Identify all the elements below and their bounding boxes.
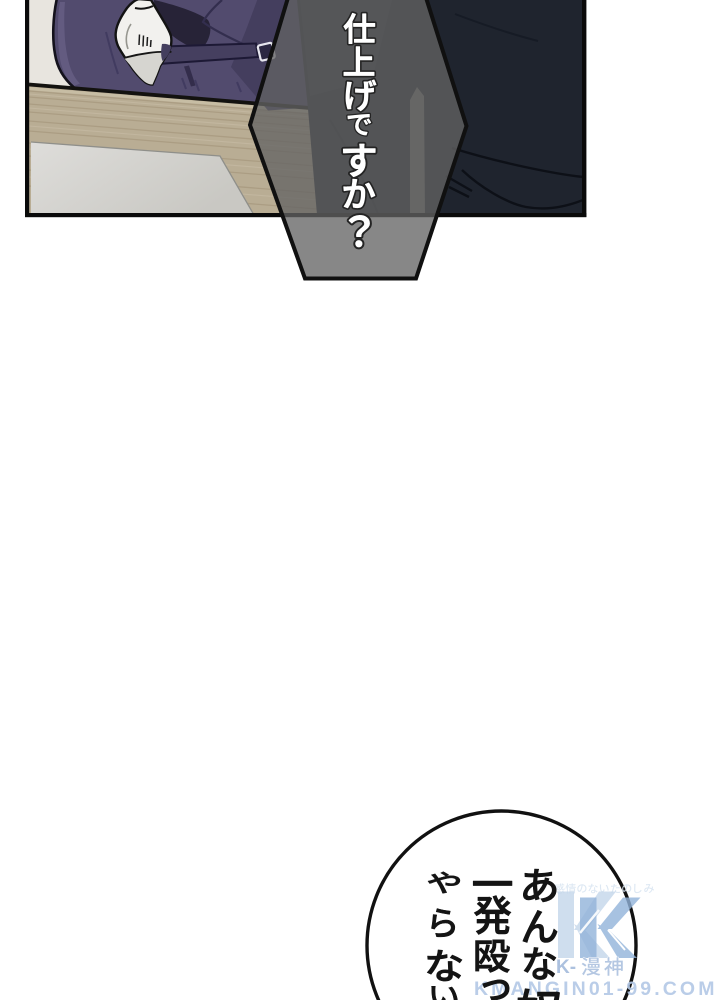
- svg-text:K-: K-: [556, 957, 576, 978]
- svg-text:KMANGIN01-99.COM: KMANGIN01-99.COM: [474, 978, 718, 1000]
